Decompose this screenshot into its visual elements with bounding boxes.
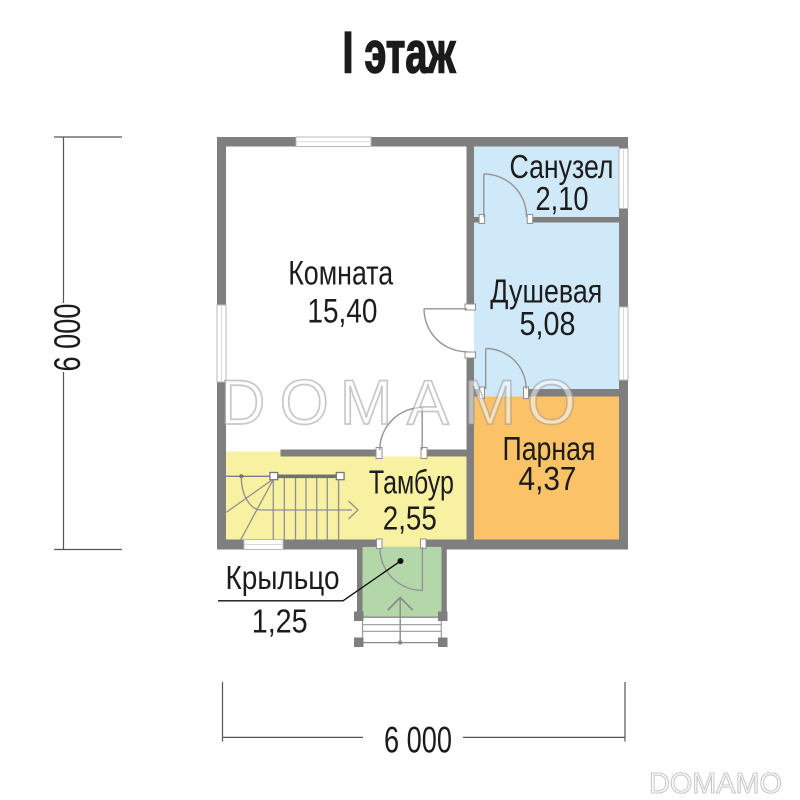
svg-text:M: M <box>463 368 515 438</box>
svg-text:15,40: 15,40 <box>307 293 377 331</box>
svg-text:5,08: 5,08 <box>520 305 576 342</box>
svg-text:2,10: 2,10 <box>536 180 589 217</box>
svg-text:6 000: 6 000 <box>47 304 88 372</box>
svg-text:Душевая: Душевая <box>490 273 602 310</box>
svg-text:O: O <box>527 368 576 438</box>
svg-text:4,37: 4,37 <box>519 460 577 497</box>
svg-text:6 000: 6 000 <box>384 719 452 760</box>
svg-text:Комната: Комната <box>288 254 393 292</box>
svg-text:Тамбур: Тамбур <box>369 464 454 501</box>
svg-text:M: M <box>340 368 392 438</box>
svg-text:1,25: 1,25 <box>252 602 308 639</box>
svg-text:DOMAMO: DOMAMO <box>649 768 782 800</box>
svg-text:A: A <box>407 368 449 438</box>
svg-text:2,55: 2,55 <box>383 499 437 536</box>
svg-text:I этаж: I этаж <box>343 21 457 86</box>
svg-text:Крыльцо: Крыльцо <box>226 559 340 596</box>
svg-text:D: D <box>220 368 266 438</box>
svg-text:O: O <box>280 368 329 438</box>
